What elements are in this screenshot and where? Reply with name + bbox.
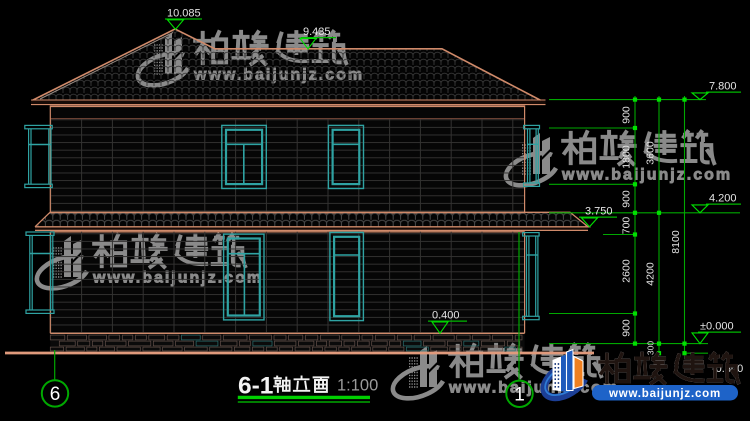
svg-text:900: 900 <box>621 190 633 208</box>
svg-text:www.baijunjz.com: www.baijunjz.com <box>608 388 721 400</box>
svg-text:4200: 4200 <box>645 262 657 286</box>
svg-text:6-1: 6-1 <box>238 373 273 400</box>
svg-text:900: 900 <box>621 319 633 337</box>
svg-text:3.750: 3.750 <box>585 206 613 218</box>
svg-text:www.baijunjz.com: www.baijunjz.com <box>561 167 732 184</box>
svg-text:3600: 3600 <box>645 141 657 165</box>
svg-text:1800: 1800 <box>621 145 633 169</box>
svg-text:900: 900 <box>621 106 633 124</box>
svg-text:8100: 8100 <box>670 230 682 254</box>
svg-text:7.800: 7.800 <box>709 81 737 93</box>
svg-text:1:100: 1:100 <box>337 377 378 395</box>
svg-text:9.435: 9.435 <box>303 26 331 38</box>
svg-text:4.200: 4.200 <box>709 193 737 205</box>
svg-text:1: 1 <box>514 385 525 406</box>
svg-text:2600: 2600 <box>621 259 633 283</box>
svg-text:700: 700 <box>621 217 633 235</box>
svg-text:6: 6 <box>50 384 61 405</box>
svg-text:0.400: 0.400 <box>432 310 460 322</box>
svg-text:10.085: 10.085 <box>167 7 201 19</box>
svg-text:±0.000: ±0.000 <box>700 321 734 333</box>
svg-text:300: 300 <box>646 341 656 355</box>
